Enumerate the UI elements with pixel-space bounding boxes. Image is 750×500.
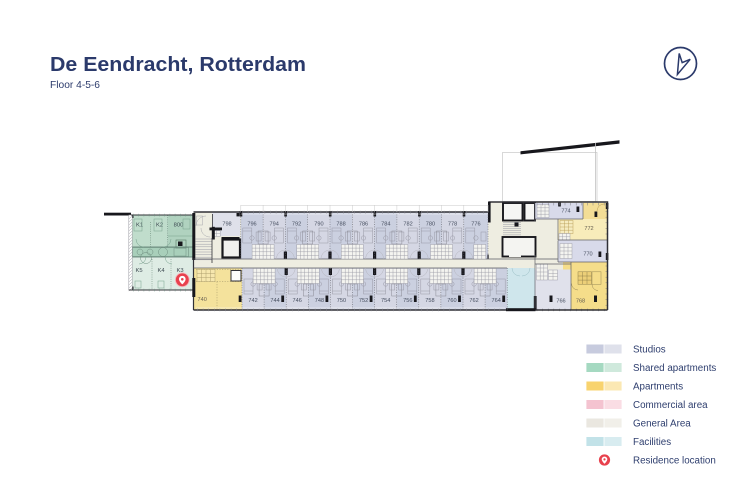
svg-text:794: 794 xyxy=(270,222,279,228)
svg-text:Studios: Studios xyxy=(633,344,666,355)
svg-text:762: 762 xyxy=(469,298,478,304)
svg-text:750: 750 xyxy=(337,298,346,304)
svg-text:780: 780 xyxy=(426,222,435,228)
svg-text:784: 784 xyxy=(381,222,390,228)
svg-text:798: 798 xyxy=(222,222,231,228)
svg-text:770: 770 xyxy=(583,252,592,258)
svg-text:768: 768 xyxy=(576,299,585,305)
svg-text:774: 774 xyxy=(561,209,570,215)
svg-text:764: 764 xyxy=(492,298,501,304)
svg-text:General Area: General Area xyxy=(633,418,691,429)
svg-text:792: 792 xyxy=(292,222,301,228)
svg-text:De Eendracht, Rotterdam: De Eendracht, Rotterdam xyxy=(50,54,306,76)
svg-text:790: 790 xyxy=(314,222,323,228)
svg-text:782: 782 xyxy=(403,222,412,228)
svg-text:Floor 4-5-6: Floor 4-5-6 xyxy=(50,79,100,91)
svg-text:742: 742 xyxy=(248,298,257,304)
svg-text:Facilities: Facilities xyxy=(633,437,671,448)
svg-text:744: 744 xyxy=(270,298,279,304)
svg-text:756: 756 xyxy=(403,298,412,304)
svg-text:796: 796 xyxy=(247,222,256,228)
svg-text:766: 766 xyxy=(556,299,565,305)
svg-text:Apartments: Apartments xyxy=(633,381,683,392)
svg-text:Residence location: Residence location xyxy=(633,455,716,466)
svg-text:Shared apartments: Shared apartments xyxy=(633,363,716,374)
svg-text:K4: K4 xyxy=(157,268,165,274)
svg-text:748: 748 xyxy=(315,298,324,304)
svg-text:760: 760 xyxy=(447,298,456,304)
svg-text:788: 788 xyxy=(336,222,345,228)
svg-text:776: 776 xyxy=(471,222,480,228)
svg-text:746: 746 xyxy=(293,298,302,304)
svg-text:758: 758 xyxy=(425,298,434,304)
svg-text:740: 740 xyxy=(198,297,207,303)
svg-text:752: 752 xyxy=(359,298,368,304)
svg-text:772: 772 xyxy=(584,226,593,232)
svg-text:Commercial area: Commercial area xyxy=(633,400,708,411)
svg-text:754: 754 xyxy=(381,298,390,304)
svg-text:778: 778 xyxy=(448,222,457,228)
svg-text:800: 800 xyxy=(174,223,184,229)
svg-text:786: 786 xyxy=(359,222,368,228)
svg-text:K5: K5 xyxy=(135,268,142,274)
